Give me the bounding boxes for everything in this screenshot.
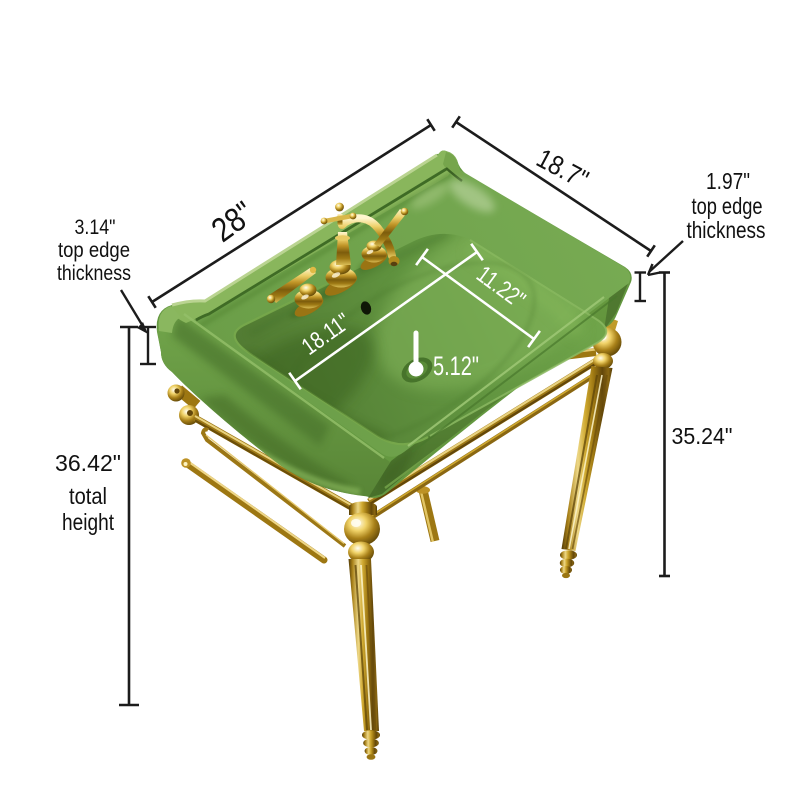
svg-text:top edge: top edge <box>692 193 763 219</box>
svg-text:thickness: thickness <box>687 217 766 243</box>
svg-text:thickness: thickness <box>57 262 131 285</box>
svg-text:1.97": 1.97" <box>706 168 750 194</box>
svg-text:35.24": 35.24" <box>672 423 733 449</box>
svg-text:28": 28" <box>205 194 261 249</box>
svg-text:5.12": 5.12" <box>433 351 479 381</box>
svg-text:total: total <box>69 483 107 509</box>
svg-text:18.7": 18.7" <box>532 143 594 195</box>
svg-text:3.14": 3.14" <box>75 216 116 239</box>
svg-text:height: height <box>62 509 115 535</box>
svg-text:top edge: top edge <box>58 239 130 262</box>
svg-text:36.42": 36.42" <box>55 450 121 476</box>
